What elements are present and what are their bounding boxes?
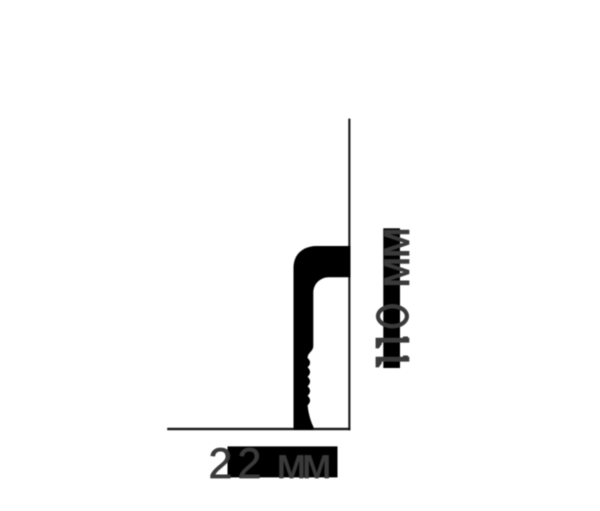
- svg-text:2: 2: [238, 440, 262, 488]
- svg-text:м: м: [367, 256, 419, 288]
- svg-text:м: м: [302, 440, 332, 488]
- svg-text:2: 2: [209, 440, 233, 488]
- svg-text:м: м: [367, 227, 419, 259]
